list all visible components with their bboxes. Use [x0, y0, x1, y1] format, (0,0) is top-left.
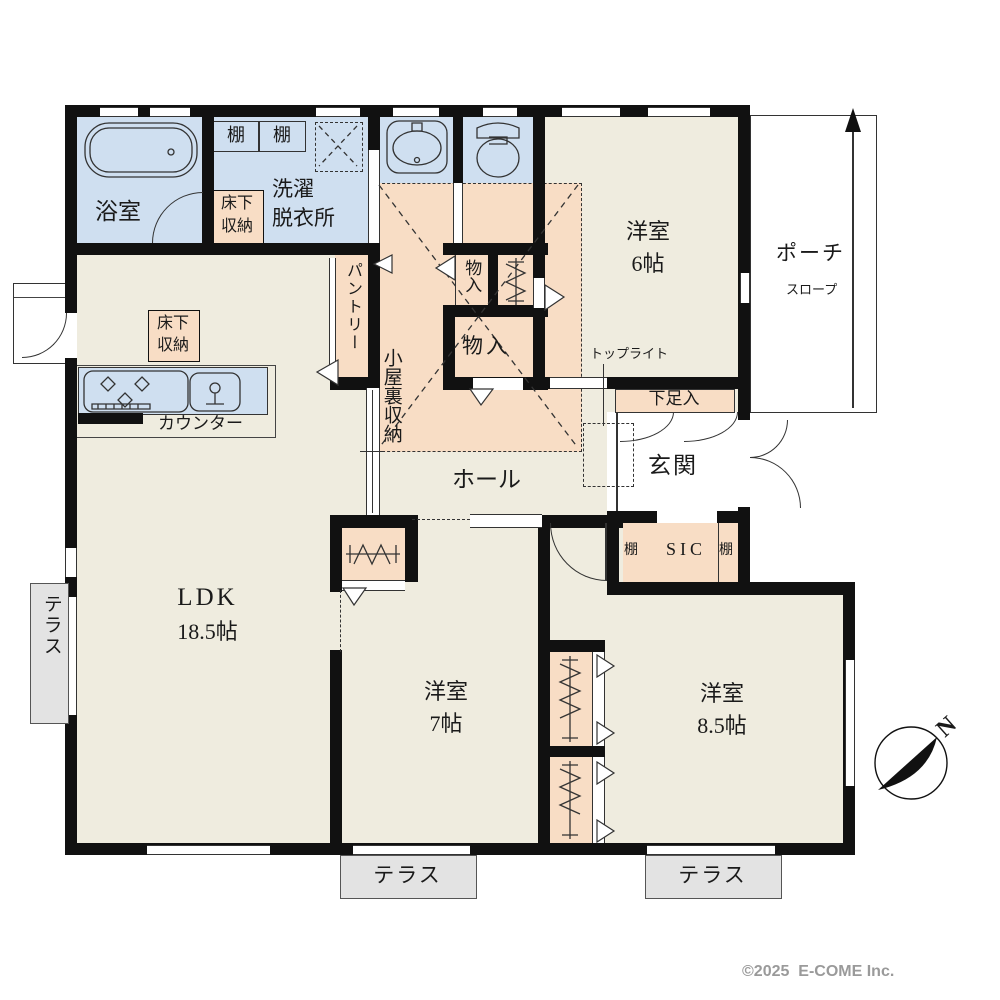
- window: [393, 107, 439, 117]
- label-hall: ホール: [452, 466, 521, 495]
- wall: [453, 105, 463, 183]
- wall: [488, 255, 498, 305]
- wall: [607, 582, 855, 595]
- label-pantry: パントリー: [342, 262, 362, 352]
- label-entrance: 玄関: [648, 452, 698, 481]
- label-toplight: トップライト: [590, 346, 668, 362]
- label-laundry-1: 洗濯: [272, 176, 314, 202]
- room-toilet: [463, 117, 533, 183]
- window: [647, 845, 775, 855]
- door-leaf-line: [605, 523, 607, 580]
- window: [65, 548, 77, 577]
- washing-machine-pan: [315, 122, 363, 172]
- label-terrace-west: テラス: [39, 594, 63, 657]
- wall: [738, 105, 750, 420]
- wall: [78, 413, 143, 424]
- room-washbasin: [380, 117, 453, 183]
- door-closet-7mat: [342, 580, 405, 591]
- label-underfloor-laundry-1: 床下: [212, 194, 262, 214]
- wall: [65, 243, 380, 255]
- sliding-door-7mat: [470, 514, 542, 528]
- closet-6mat: [498, 255, 533, 305]
- label-closet-2: 物入: [462, 333, 510, 359]
- label-laundry-2: 脱衣所: [272, 205, 335, 231]
- label-western7-2: 7帖: [412, 710, 480, 738]
- door-closet-hall: [473, 378, 523, 390]
- label-western7-1: 洋室: [412, 678, 480, 706]
- label-ldk-1: LDK: [155, 582, 260, 613]
- wall: [443, 243, 548, 255]
- wall: [538, 515, 550, 845]
- compass-icon: [875, 727, 947, 799]
- closet-85mat-lower: [550, 757, 593, 843]
- window: [740, 273, 750, 303]
- label-underfloor-laundry-2: 収納: [212, 217, 262, 237]
- opening-dashed: [412, 519, 470, 520]
- wall: [368, 105, 380, 150]
- door-arc-entrance-child: [750, 420, 788, 458]
- door-closet-85-upper: [592, 652, 605, 746]
- window: [648, 107, 710, 117]
- wall: [65, 105, 77, 313]
- label-ldk-2: 18.5帖: [155, 618, 260, 646]
- label-shelf-2: 棚: [262, 124, 302, 147]
- window: [845, 660, 855, 786]
- wall: [533, 377, 550, 389]
- opening-dashed: [340, 590, 341, 652]
- wall: [330, 515, 342, 592]
- label-porch: ポーチ: [776, 240, 845, 266]
- label-sic: SIC: [655, 538, 717, 561]
- backdoor-opening: [65, 313, 77, 358]
- pantry-front: [329, 258, 336, 373]
- window: [483, 107, 517, 117]
- wall: [405, 515, 418, 582]
- window: [562, 107, 620, 117]
- sliding-door-6mat: [550, 377, 607, 389]
- closet-7mat: [342, 528, 405, 580]
- label-terrace-south-1: テラス: [340, 862, 475, 888]
- label-slope: スロープ: [786, 282, 837, 298]
- toplight-leader: [603, 364, 604, 426]
- label-western6-2: 6帖: [613, 250, 683, 278]
- window: [316, 107, 360, 117]
- label-north: N: [930, 710, 963, 744]
- floor-plan: 浴室 棚 棚 洗濯 脱衣所 床下 収納 床下 収納 パントリー 小屋裏収納 物入…: [0, 0, 1000, 1000]
- label-counter: カウンター: [158, 413, 243, 434]
- wall: [330, 650, 342, 850]
- window: [147, 845, 270, 855]
- wall: [538, 746, 605, 757]
- copyright-text: ©2025 E-COME Inc.: [742, 962, 894, 982]
- label-attic: 小屋裏収納: [379, 348, 403, 443]
- label-underfloor-ldk-1: 床下: [148, 314, 198, 334]
- backdoor-step-line: [14, 297, 66, 298]
- door-arc-entrance-main: [750, 457, 801, 508]
- label-sic-shelf-left: 棚: [624, 542, 638, 560]
- door-tick: [360, 451, 384, 452]
- label-terrace-south-2: テラス: [645, 862, 780, 888]
- label-shelf-1: 棚: [216, 124, 256, 147]
- door-closet-6mat: [533, 278, 545, 308]
- label-shoe-cabinet: 下足入: [615, 388, 733, 409]
- closet-85mat-upper: [550, 652, 593, 746]
- door-laundry-corridor: [368, 150, 380, 243]
- label-western85-1: 洋室: [682, 680, 762, 708]
- window: [353, 845, 470, 855]
- door-toilet: [453, 183, 463, 243]
- label-closet-1: 物入: [461, 259, 482, 293]
- label-sic-shelf-right: 棚: [719, 542, 733, 560]
- label-western85-2: 8.5帖: [682, 712, 762, 740]
- door-entrance-sic: [657, 511, 717, 523]
- label-bath: 浴室: [95, 198, 141, 227]
- wall: [330, 515, 412, 528]
- window: [150, 107, 190, 117]
- wall: [538, 640, 605, 652]
- door-closet-85-lower: [592, 757, 605, 843]
- house-floor-east-wing: [750, 582, 855, 855]
- label-underfloor-ldk-2: 収納: [148, 336, 198, 356]
- label-western6-1: 洋室: [613, 218, 683, 246]
- window: [100, 107, 138, 117]
